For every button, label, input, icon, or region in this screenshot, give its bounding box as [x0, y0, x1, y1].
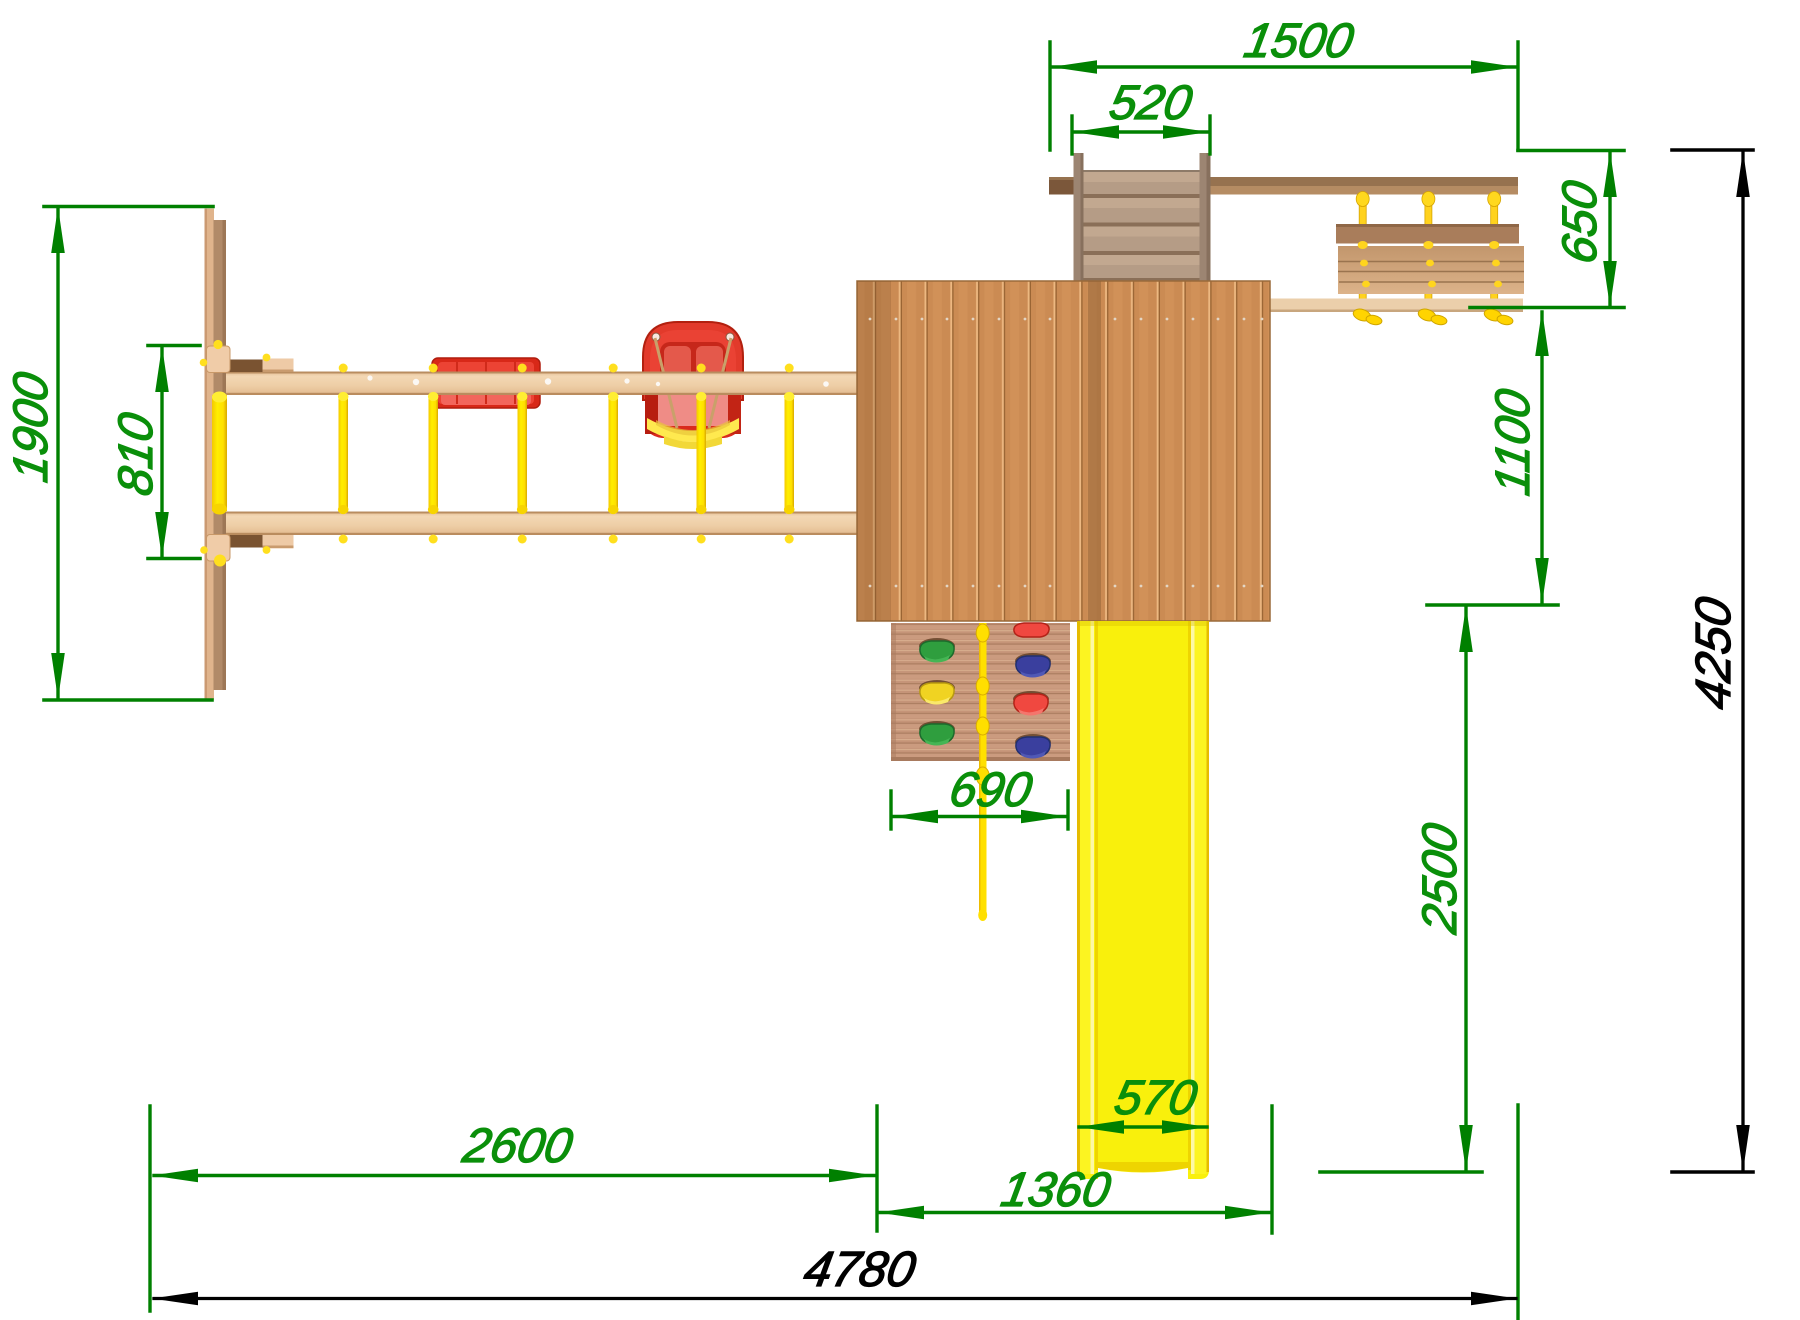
svg-text:690: 690 — [946, 763, 1036, 817]
svg-text:1100: 1100 — [1486, 385, 1540, 499]
svg-text:4250: 4250 — [1685, 593, 1741, 713]
svg-text:650: 650 — [1553, 177, 1607, 267]
svg-text:4780: 4780 — [800, 1241, 920, 1297]
svg-text:1500: 1500 — [1240, 14, 1357, 68]
svg-text:570: 570 — [1111, 1071, 1201, 1125]
svg-text:1900: 1900 — [4, 369, 58, 486]
svg-text:2500: 2500 — [1413, 820, 1467, 938]
svg-text:810: 810 — [109, 409, 163, 499]
svg-text:2600: 2600 — [458, 1119, 576, 1173]
svg-text:520: 520 — [1106, 76, 1196, 130]
svg-text:1360: 1360 — [997, 1163, 1114, 1217]
